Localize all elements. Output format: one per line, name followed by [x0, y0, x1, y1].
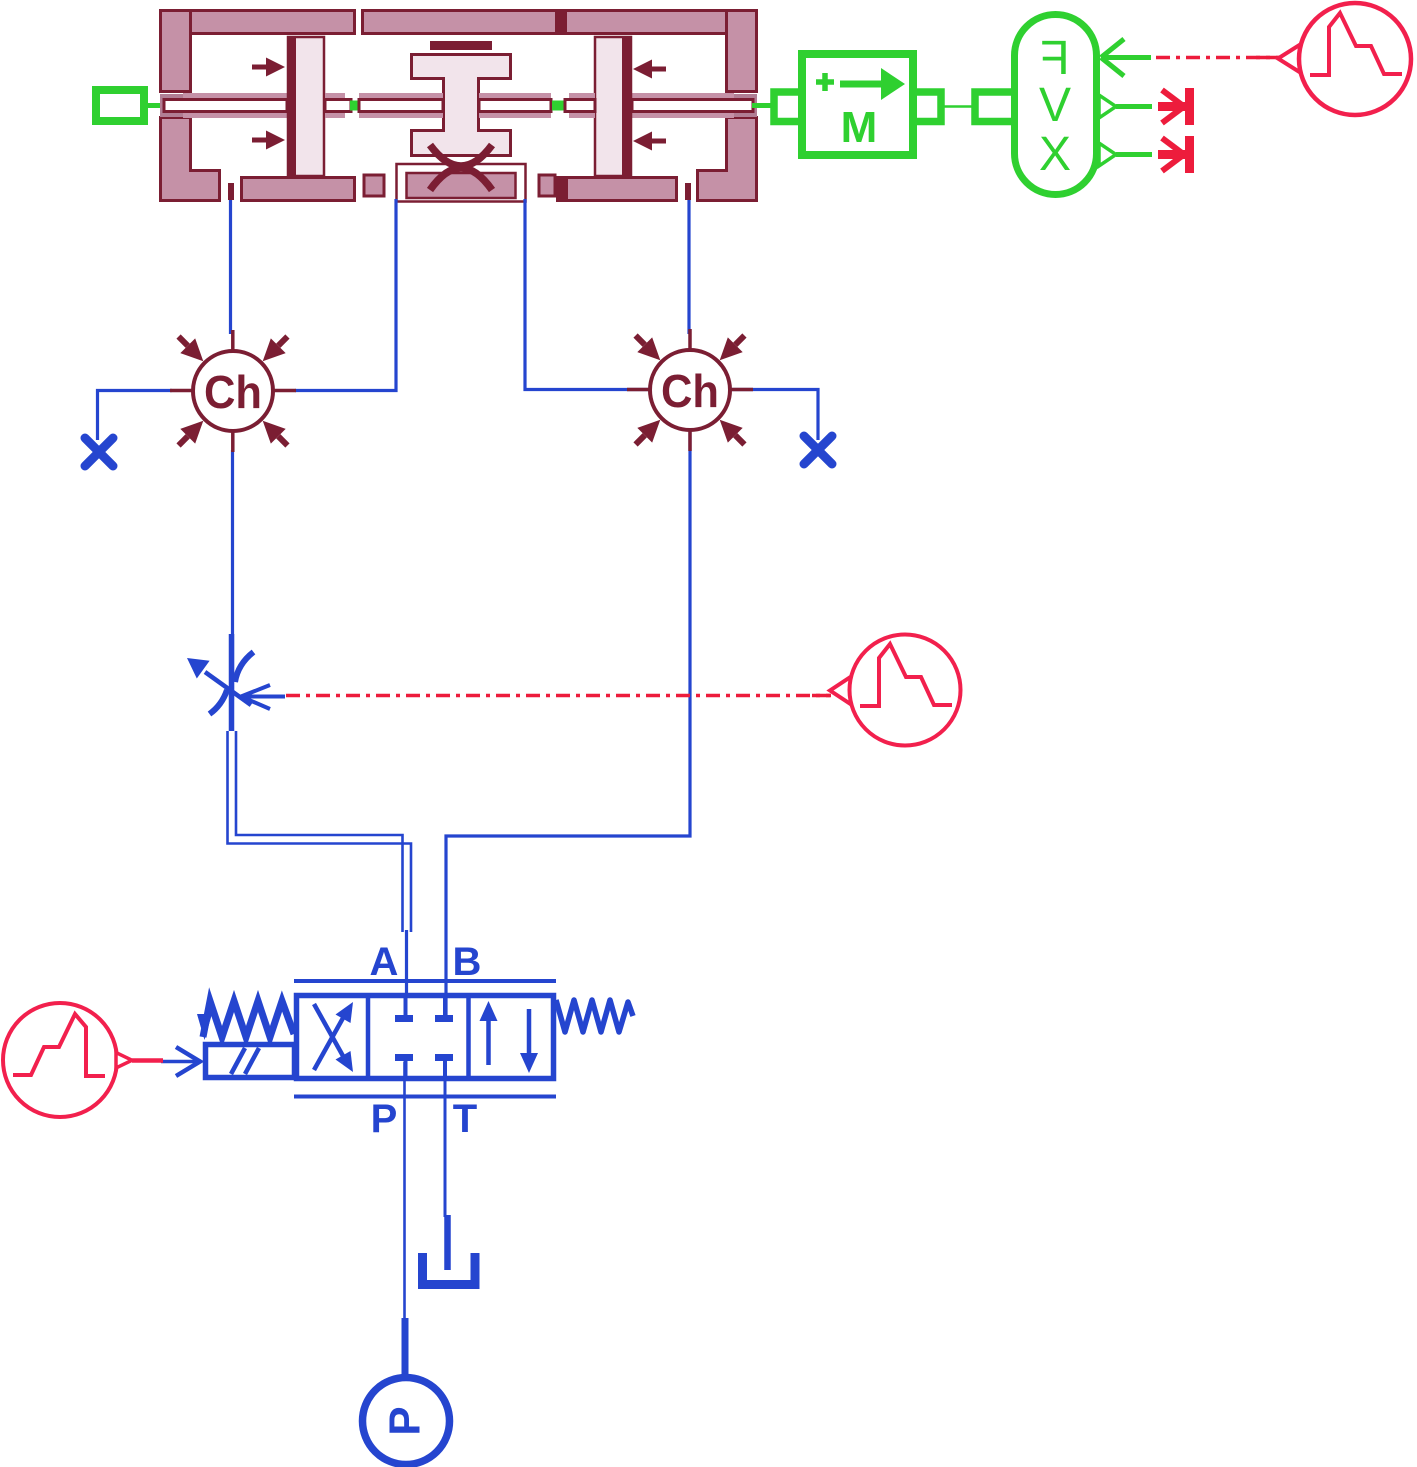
- svg-text:P: P: [381, 1406, 430, 1435]
- svg-text:Ch: Ch: [661, 365, 719, 417]
- svg-text:A: A: [370, 940, 399, 984]
- svg-text:V: V: [1039, 79, 1071, 132]
- svg-text:Ch: Ch: [204, 366, 262, 418]
- svg-text:B: B: [453, 940, 482, 984]
- svg-text:M: M: [841, 103, 878, 152]
- svg-text:P: P: [371, 1097, 398, 1141]
- svg-text:F: F: [1040, 32, 1069, 85]
- svg-text:T: T: [453, 1097, 477, 1141]
- svg-text:X: X: [1039, 128, 1071, 181]
